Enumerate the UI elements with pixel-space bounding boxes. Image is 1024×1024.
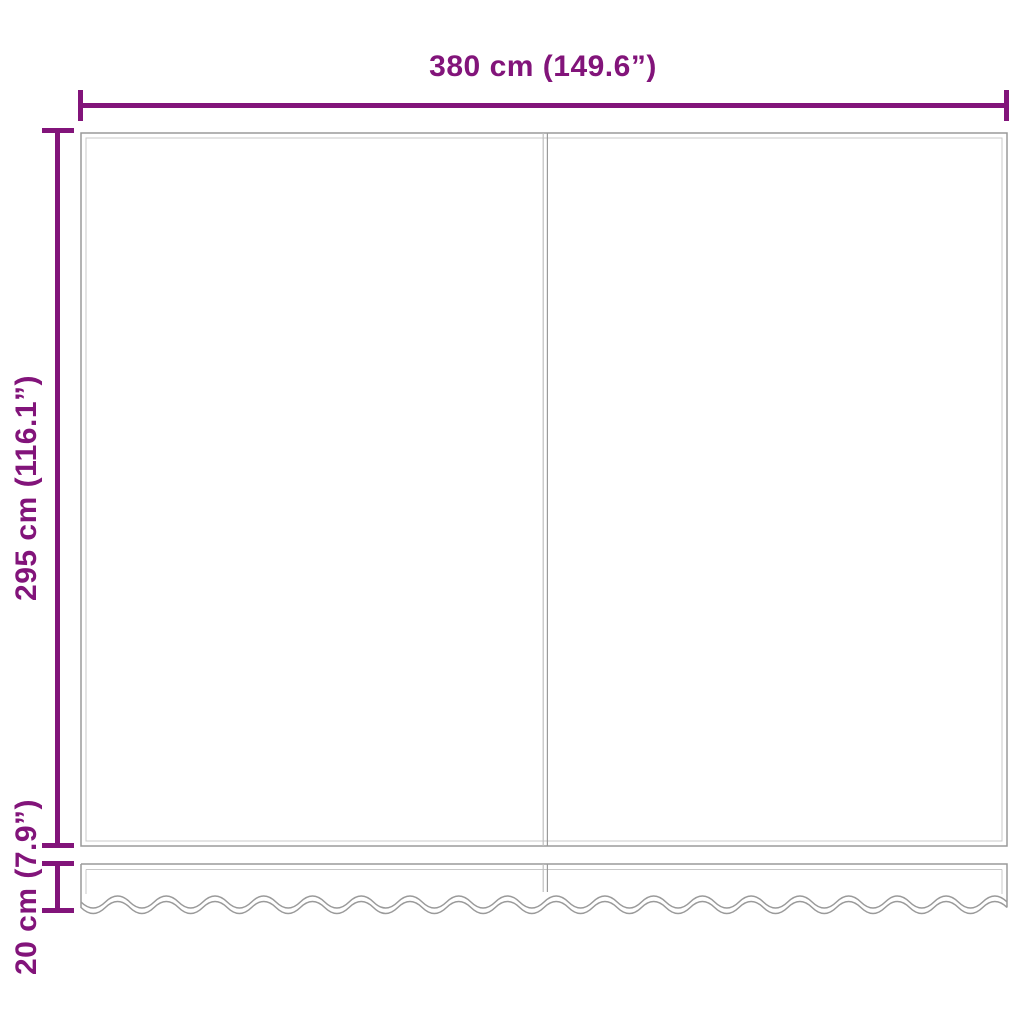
valance-strip — [81, 864, 1007, 914]
main-fabric-panel — [81, 133, 1007, 846]
valance-dimension-label: 20 cm (7.9”) — [10, 799, 44, 975]
valance-outline — [81, 864, 1007, 914]
main-panel-outline — [81, 133, 1007, 846]
height-dimension-label: 295 cm (116.1”) — [10, 375, 44, 601]
diagram-drawing — [0, 0, 1024, 1024]
awning-fabric-dimension-diagram: 380 cm (149.6”) 295 cm (116.1”) 20 cm (7… — [0, 0, 1024, 1024]
width-dimension-label: 380 cm (149.6”) — [429, 50, 657, 84]
